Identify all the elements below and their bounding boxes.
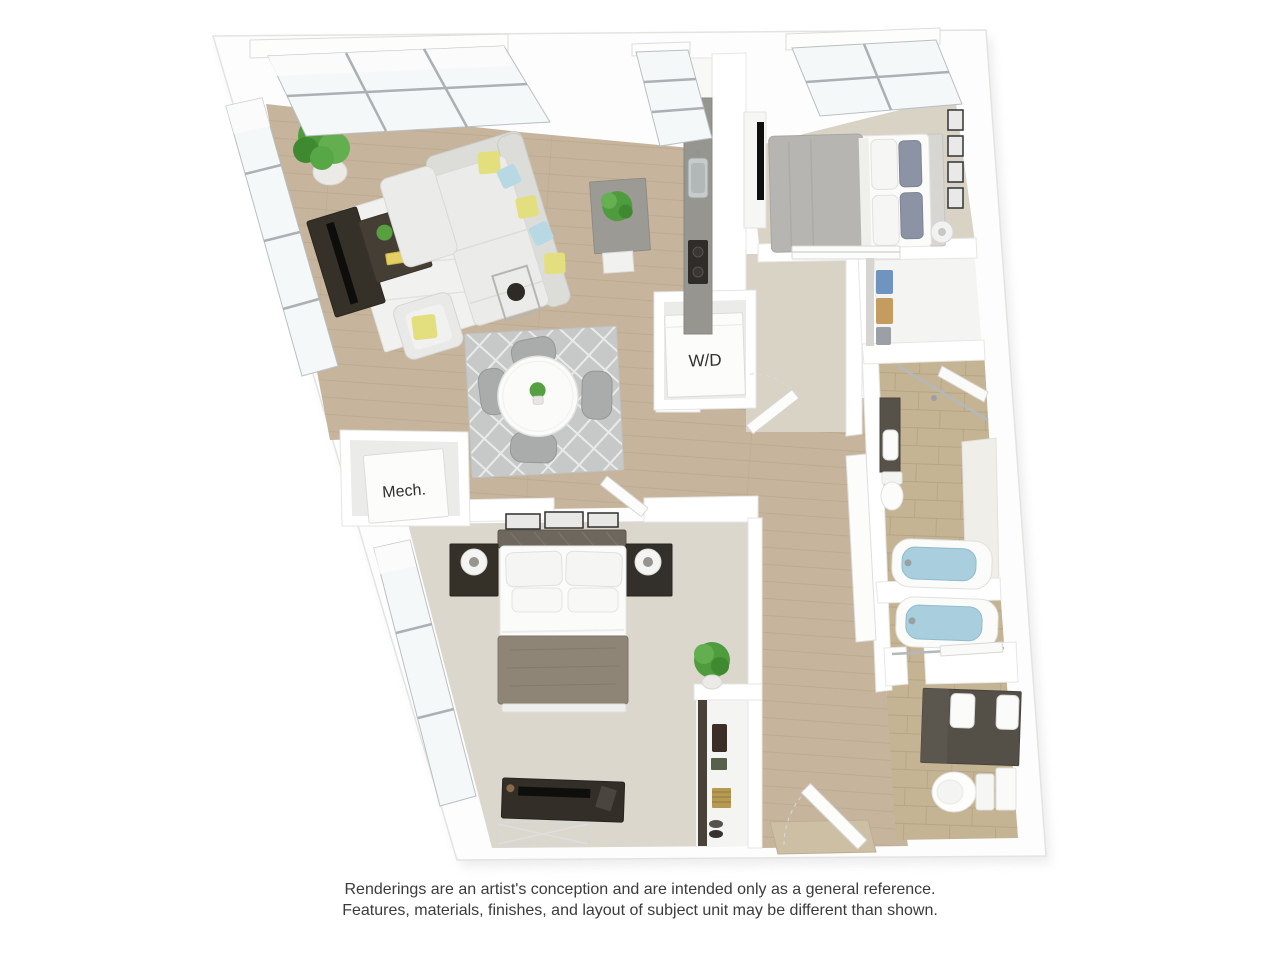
washer-dryer-label: W/D (688, 350, 722, 370)
disclaimer-line-1: Renderings are an artist's conception an… (0, 879, 1280, 900)
art-frame (948, 136, 963, 156)
bed-top (769, 132, 946, 253)
art-above-bed (506, 512, 618, 529)
disclaimer: Renderings are an artist's conception an… (0, 879, 1280, 921)
plant-foliage (694, 644, 714, 664)
bath1-sink (883, 430, 898, 460)
table-lamp-center (938, 228, 946, 236)
hanging-clothes-tan (876, 298, 893, 324)
art-frame (588, 513, 618, 527)
bed-pillow (871, 139, 898, 190)
drum-lamp-center (469, 557, 479, 567)
bedroom-top-tv (757, 122, 764, 200)
closet-shelf (698, 700, 707, 846)
closet-item (711, 758, 727, 770)
bed-pillow (565, 551, 622, 587)
throw-pillow-yellow (544, 252, 566, 274)
closet-shoes (709, 820, 723, 828)
mechanical-closet: Mech. (340, 430, 470, 526)
bathtub-2 (895, 596, 999, 650)
floorplan-page: W/D Mech. (0, 0, 1280, 960)
drum-lamp-center (643, 557, 653, 567)
cooktop-burner (693, 247, 703, 257)
plant-pot (702, 675, 722, 689)
bathtub-1 (891, 538, 993, 589)
island-base (603, 251, 634, 273)
armchair-pillow (411, 314, 438, 341)
throw-pillow-yellow (515, 195, 540, 220)
hanging-clothes-gray (876, 327, 891, 345)
plant-foliage (711, 657, 729, 675)
closet-bag (712, 724, 727, 752)
accent-pillow (899, 140, 922, 187)
art-frame (545, 512, 583, 528)
cooktop-burner (693, 267, 703, 277)
plant-foliage (310, 146, 334, 170)
bath1-toilet (881, 482, 903, 510)
mechanical-label: Mech. (382, 481, 427, 501)
floor-plan-rendering: W/D Mech. (0, 0, 1280, 960)
centerpiece-pot (533, 396, 543, 405)
kitchen-sink-basin (691, 163, 705, 193)
gray-duvet (769, 134, 866, 252)
vanity-sink (950, 693, 975, 728)
towel-shelf (996, 768, 1016, 810)
wall-bedroom2-right (748, 518, 762, 848)
toilet-seat (937, 780, 963, 804)
vanity-cabinet (921, 688, 950, 763)
art-frame (948, 162, 963, 182)
door-handle (931, 395, 937, 401)
bed-pillow (512, 588, 562, 612)
tub-water (901, 547, 976, 582)
closet-shoes (709, 830, 723, 838)
walkin-closet (866, 258, 893, 346)
closet-basket (712, 788, 731, 808)
wall-bedroom2-top-right (644, 496, 758, 522)
wall-kitchen-bedroom (712, 53, 746, 302)
bed-pillow (872, 195, 899, 246)
art-frame (948, 188, 963, 208)
tub-water (905, 605, 982, 642)
footboard (502, 704, 626, 712)
disclaimer-line-2: Features, materials, finishes, and layou… (0, 900, 1280, 921)
throw-pillow-yellow (477, 151, 501, 175)
accent-pillow (900, 192, 923, 239)
media-console (501, 778, 624, 822)
art-frame (948, 110, 963, 130)
bath2-vanity (921, 688, 1022, 765)
carpet-bedroom-top-nook (746, 254, 848, 432)
kitchen-faucet (696, 151, 701, 156)
hanging-clothes-blue (876, 270, 893, 294)
taupe-blanket (498, 636, 628, 704)
bed-pillow (568, 588, 618, 612)
bed-pillow (505, 551, 562, 587)
dining-chair (582, 371, 613, 420)
closet-shelf (866, 258, 874, 346)
vanity-sink (996, 695, 1019, 730)
toilet-tank (976, 774, 994, 810)
art-frame (506, 514, 540, 529)
